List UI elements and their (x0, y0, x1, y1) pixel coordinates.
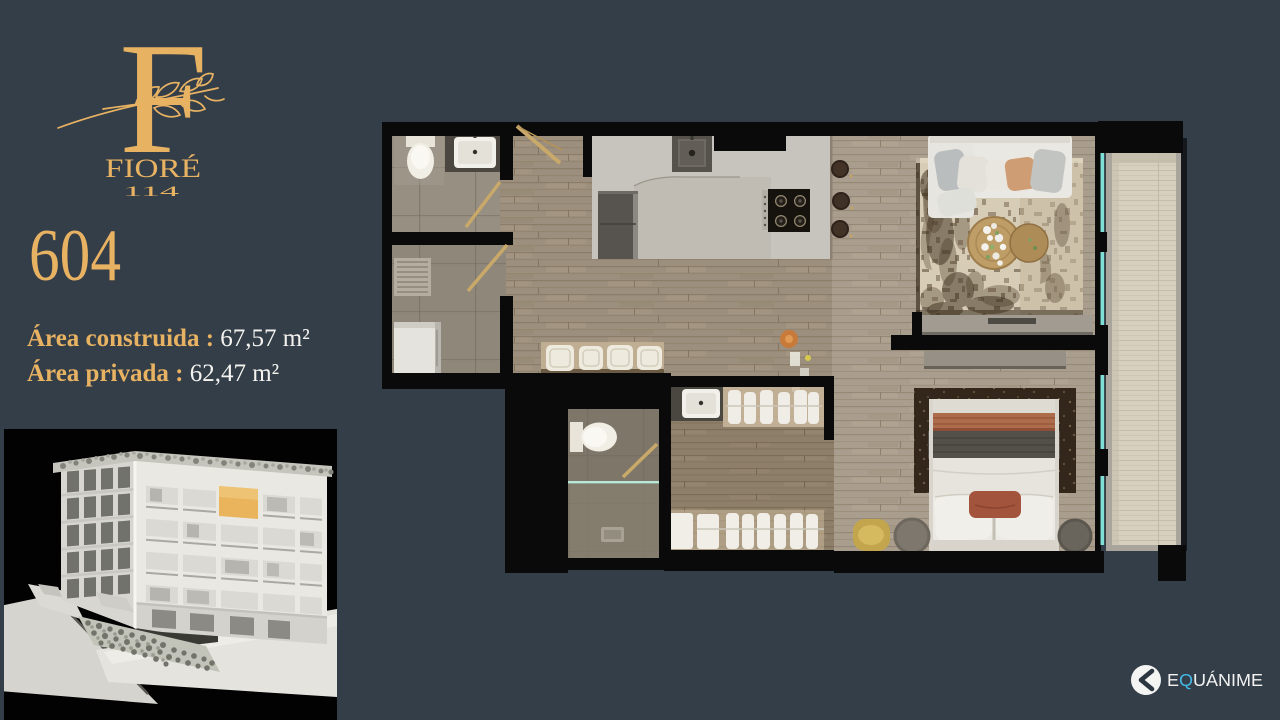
svg-text:FIORÉ: FIORÉ (105, 154, 201, 183)
svg-text:604: 604 (29, 215, 121, 297)
svg-text:Área privada : 62,47 m²: Área privada : 62,47 m² (27, 359, 279, 387)
svg-text:EQUÁNIME: EQUÁNIME (1167, 670, 1263, 690)
svg-text:114: 114 (123, 184, 180, 200)
svg-text:Área construida : 67,57 m²: Área construida : 67,57 m² (27, 324, 310, 352)
